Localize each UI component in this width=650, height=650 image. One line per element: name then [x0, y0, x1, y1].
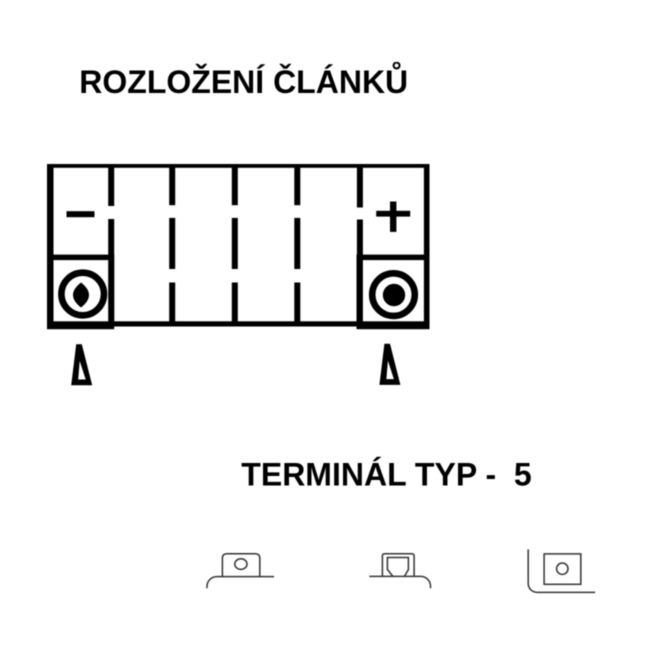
svg-text:TERMINÁL TYP - 5: TERMINÁL TYP - 5	[241, 457, 531, 493]
svg-text:ROZLOŽENÍ ČLÁNKŮ: ROZLOŽENÍ ČLÁNKŮ	[79, 62, 408, 100]
